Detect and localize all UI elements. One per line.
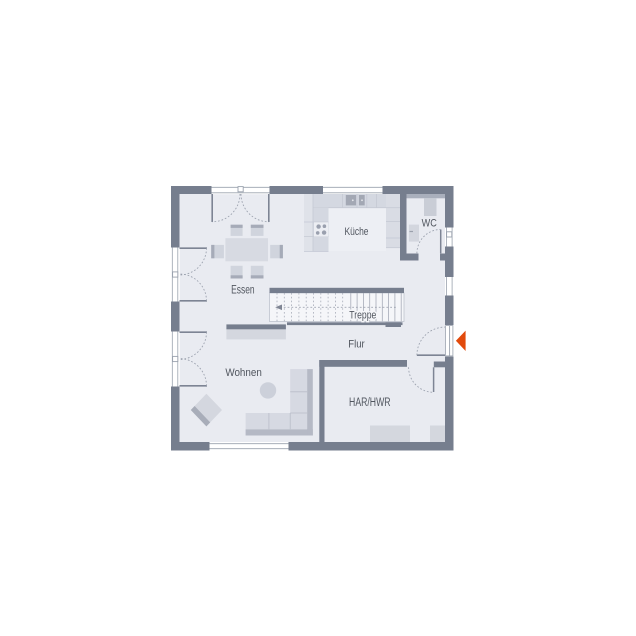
svg-text:Essen: Essen	[231, 285, 255, 297]
svg-text:Flur: Flur	[348, 339, 365, 351]
svg-text:Wohnen: Wohnen	[225, 367, 262, 379]
svg-text:HAR/HWR: HAR/HWR	[349, 397, 391, 409]
svg-text:WC: WC	[422, 217, 437, 229]
svg-text:Küche: Küche	[345, 226, 369, 238]
svg-text:Treppe: Treppe	[349, 309, 376, 321]
